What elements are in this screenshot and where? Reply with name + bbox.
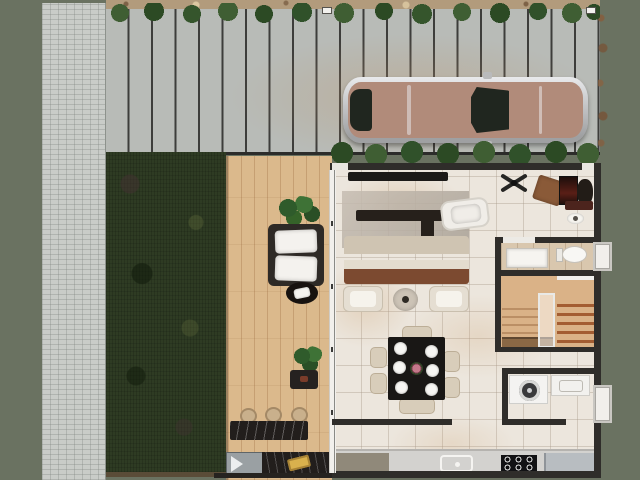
deck-edge [214,473,332,478]
kitchen-counter [334,449,594,473]
bathroom-door [503,237,535,243]
car-body [348,82,583,138]
stair-treads-upper [502,308,540,340]
faucet-icon [455,462,460,467]
window-bathroom [593,242,612,271]
parked-car [343,77,588,143]
dining-chair [370,373,387,394]
outdoor-lounge-chair [268,224,324,286]
armchair-cushion [436,291,462,307]
stair-treads-lower [557,304,594,348]
washer-knob [527,388,532,393]
wall-tv [348,172,448,181]
dining-chair [399,398,435,414]
car-roof-seam [407,85,411,135]
round-side-table [393,288,418,311]
burner-icon [504,464,511,471]
laundry-sink [551,375,590,396]
dining-chair [370,347,387,368]
wall-bathroom-bottom [497,270,596,276]
wall-laundry-left [502,368,508,424]
potted-plant-icon [292,346,326,373]
floor-plan-render [0,0,640,480]
shower-tray [506,248,548,268]
car-hood-seam [539,86,542,134]
burner-icon [526,464,533,471]
car-rear-window [350,89,372,131]
car-mirror-left [483,72,492,79]
decorative-dish [567,213,584,224]
wall-laundry-top [502,368,596,374]
dining-table [388,337,445,400]
driveway-ragged-edge [598,8,608,154]
car-windshield [471,87,509,133]
burner-icon [526,456,533,463]
washing-machine [509,375,548,404]
sofa-wood-base [344,269,469,284]
armchair-right [429,286,469,312]
hedge-row-top [106,0,600,24]
wall-exterior-bottom [330,471,600,478]
burner-icon [504,456,511,463]
dinner-plate [394,342,407,355]
dinner-plate [393,361,406,374]
wall-laundry-bottom [502,419,566,425]
table-item [300,376,308,382]
table-dish [293,286,311,299]
outdoor-grill [226,452,263,474]
floral-centerpiece [410,362,423,375]
burner-icon [515,456,522,463]
deck-small-table [290,370,318,389]
wall-stairs-bottom [497,347,596,352]
wall-interior-vertical [495,237,501,352]
lounge-cushion [275,255,318,281]
wall-exterior-right [594,163,601,478]
wall-corner-block [332,163,348,170]
grill-lid-icon [231,456,243,472]
floor-mat [565,201,593,210]
chaise-lounge [439,196,490,232]
dining-chair [443,377,460,398]
wall-exterior-top [330,163,600,170]
dinner-plate [425,383,438,396]
hedge-bushes [106,3,600,24]
table-center-item [402,296,409,303]
toilet-bowl [562,246,587,263]
ceiling-fan-icon [498,171,530,195]
washer-drum-icon [519,380,540,401]
armchair-cushion [350,291,376,307]
kitchen-sink [440,455,473,472]
gate-latch-right [586,7,596,14]
serving-tray [287,455,311,472]
dinner-plate [426,364,439,377]
gate-latch-left [322,7,332,14]
sliding-glass-door [329,170,336,473]
dinner-plate [425,345,438,358]
kitchen-cabinet [336,453,389,473]
door-mullions [331,170,333,473]
window-laundry [593,385,612,423]
lawn [106,152,226,477]
chaise-cushion [450,203,482,225]
half-wall-kitchen [332,419,452,425]
dining-chair [443,351,460,372]
cooktop [501,455,537,472]
dinner-plate [395,381,408,394]
glass-railing [538,293,555,348]
wall-corner-block [582,163,594,170]
dish-item [573,216,578,221]
paver-walkway [42,3,106,480]
sink-basin [559,380,583,392]
outdoor-bar-counter [230,421,308,440]
toilet [556,246,588,264]
oval-side-table [286,282,318,304]
burner-icon [515,464,522,471]
lounge-cushion [275,229,318,253]
coffee-table [356,210,449,221]
armchair-left [343,286,383,312]
fan-hub [511,180,517,186]
sofa [344,236,469,284]
